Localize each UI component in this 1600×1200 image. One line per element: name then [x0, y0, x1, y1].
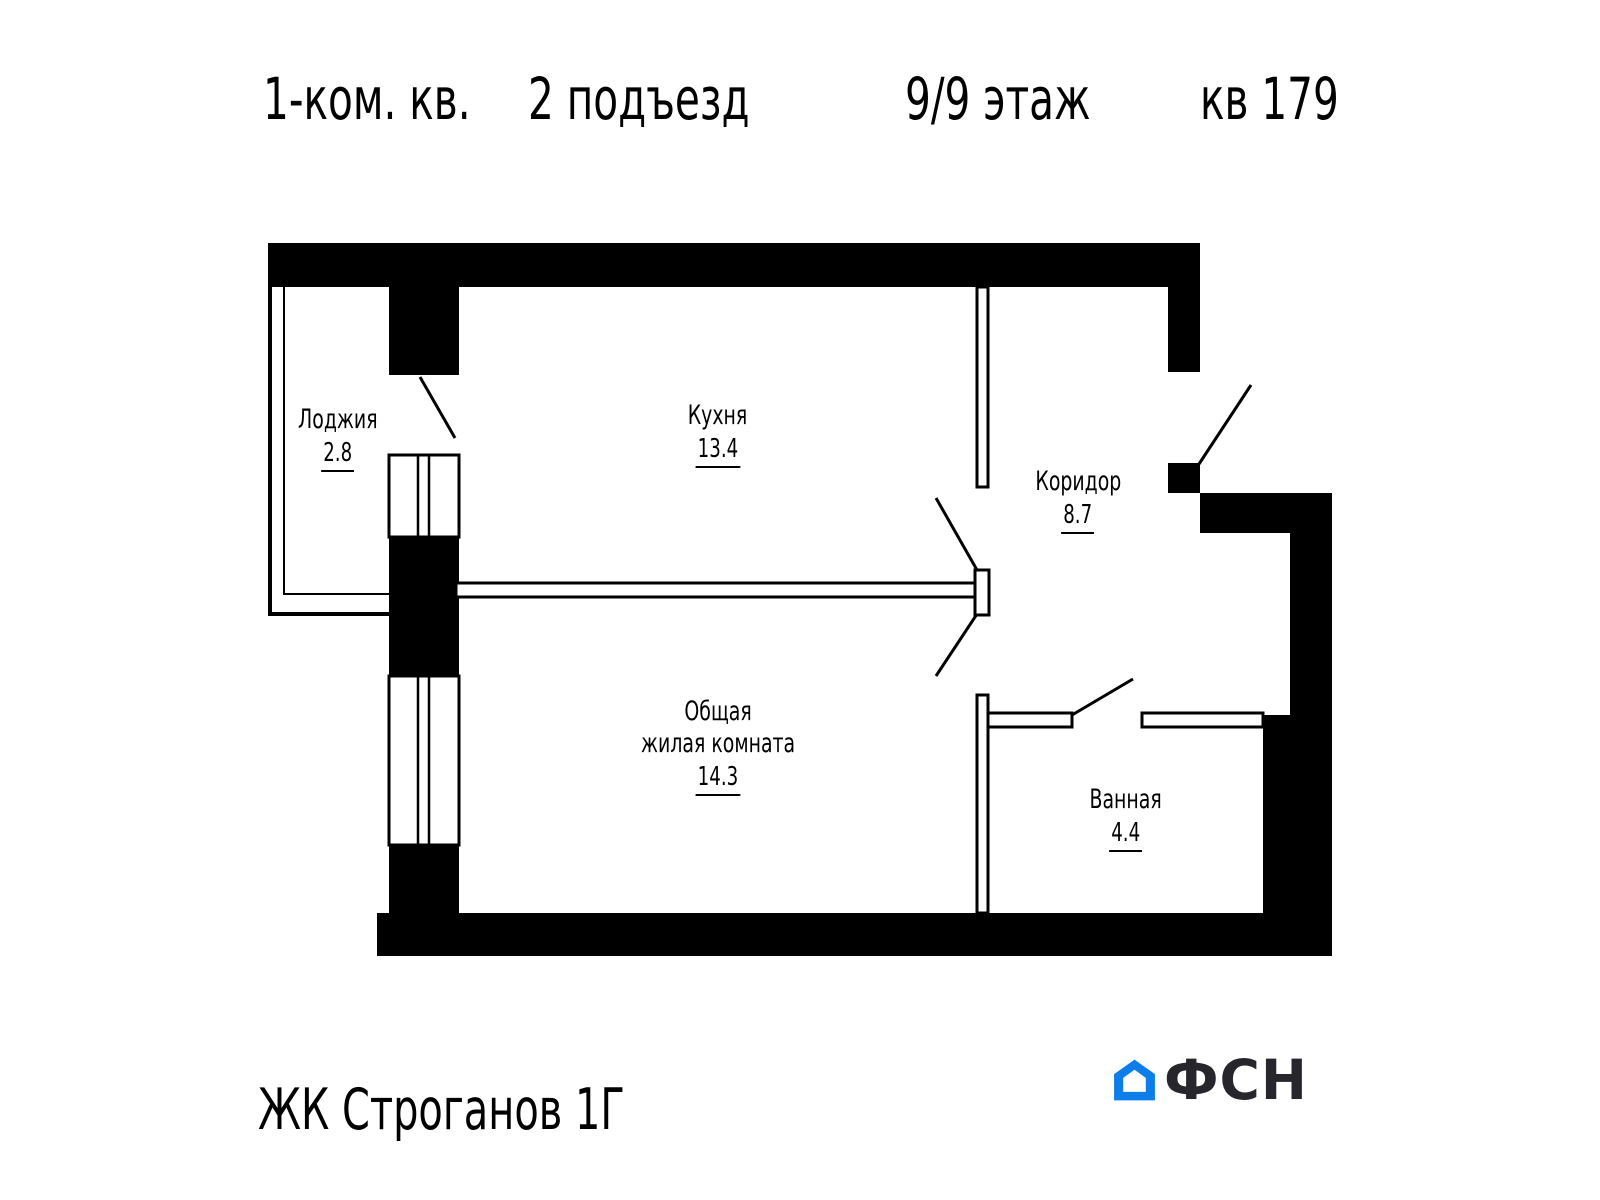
walls: [268, 243, 1332, 956]
partition-kitchen-living: [456, 583, 977, 597]
loggia-wall-outer-bottom: [268, 612, 390, 616]
wall-bottom: [377, 913, 1332, 956]
opening-splay-lower: [936, 614, 977, 676]
wall-pillar-upper: [389, 287, 459, 375]
partition-bathroom-top-left: [988, 713, 1072, 727]
window-living: [389, 676, 459, 845]
partition-end-cap: [975, 570, 989, 615]
wall-pillar-lower: [389, 845, 459, 913]
complex-name: ЖК Строганов 1Г: [258, 1076, 782, 1144]
room-name: Лоджия: [238, 404, 438, 436]
partition-kitchen-corridor: [977, 287, 988, 487]
room-area: 4.4: [1026, 818, 1226, 848]
house-icon: [1113, 1058, 1156, 1102]
room-name: Коридор: [978, 466, 1178, 498]
room-name: Кухня: [618, 400, 818, 432]
wall-top: [268, 243, 1200, 287]
room-label-corridor: Коридор 8.7: [978, 466, 1178, 530]
title-floor: 9/9 этаж: [905, 70, 1170, 128]
room-name: Ванная: [1026, 784, 1226, 816]
room-label-living: Общая жилая комната 14.3: [568, 696, 868, 792]
room-label-bathroom: Ванная 4.4: [1026, 784, 1226, 848]
room-area: 13.4: [618, 434, 818, 464]
loggia-wall-inner-bottom: [283, 593, 390, 595]
logo-brand-text: ФСН: [1164, 1058, 1308, 1102]
title-entrance: 2 подъезд: [528, 70, 844, 128]
room-area: 8.7: [978, 500, 1178, 530]
doors: [420, 377, 1251, 715]
wall-pillar-middle: [389, 537, 459, 676]
wall-bathroom-right: [1263, 715, 1332, 913]
partition-bathroom-left: [977, 695, 988, 913]
wall-entry-band: [1200, 493, 1332, 533]
room-area: 2.8: [238, 438, 438, 468]
title-apartment: кв 179: [1200, 70, 1398, 128]
floorplan-page: 1-ком. кв. 2 подъезд 9/9 этаж кв 179 Лод…: [0, 0, 1600, 1200]
wall-entry-upper: [1168, 287, 1200, 372]
bathroom-door-leaf: [1072, 679, 1133, 715]
room-label-kitchen: Кухня 13.4: [618, 400, 818, 464]
title-rooms-type: 1-ком. кв.: [263, 70, 560, 128]
partition-bathroom-top-right: [1142, 713, 1263, 727]
developer-logo: ФСН: [1113, 1058, 1308, 1102]
floorplan-drawing: [0, 0, 1600, 1200]
room-name-line2: жилая комната: [568, 728, 868, 760]
entrance-door-leaf: [1199, 385, 1251, 464]
room-name-line1: Общая: [568, 696, 868, 728]
opening-splay-upper: [936, 498, 977, 570]
room-area: 14.3: [568, 762, 868, 792]
room-label-loggia: Лоджия 2.8: [238, 404, 438, 468]
